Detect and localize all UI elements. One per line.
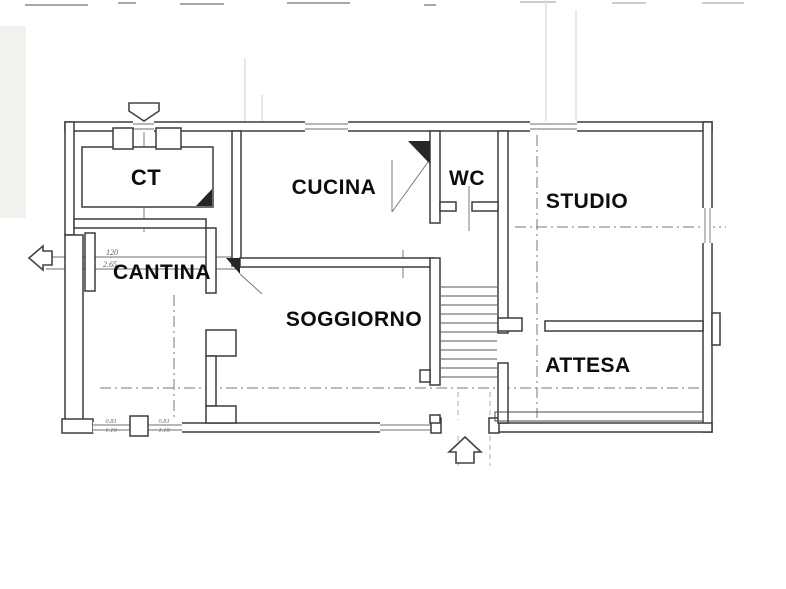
dim-side-door-height: 2.65 bbox=[103, 260, 117, 269]
dim-window-right-height: 1.10 bbox=[158, 427, 170, 434]
door-wedge-soggiorno bbox=[226, 258, 240, 274]
hall-left-wall-mid bbox=[430, 258, 440, 385]
wc-bottom-wall-left bbox=[440, 202, 456, 211]
dim-window-left-width: 0.81 bbox=[105, 418, 116, 425]
window-right bbox=[702, 208, 713, 243]
cucina-left-wall bbox=[232, 131, 241, 266]
window-mullion bbox=[130, 416, 148, 436]
room-label-cucina: CUCINA bbox=[292, 176, 377, 199]
divider-cantina-lower bbox=[206, 356, 216, 406]
cantina-door-jamb bbox=[85, 233, 95, 291]
dim-side-door-width: 120 bbox=[106, 248, 118, 257]
door-wedge-cucina bbox=[408, 141, 430, 164]
scanned-floor-plan-page: CT CUCINA WC STUDIO CANTINA SOGGIORNO AT… bbox=[0, 0, 786, 589]
divider-bottom-block bbox=[206, 406, 236, 423]
hall-right-stub bbox=[498, 318, 522, 331]
corner-block bbox=[62, 419, 93, 433]
cantina-top-wall bbox=[74, 219, 206, 228]
hall-right-wall-lower bbox=[498, 363, 508, 423]
hall-left-wall-lower bbox=[430, 415, 440, 423]
room-label-ct: CT bbox=[131, 165, 161, 190]
arrow-left-icon bbox=[29, 246, 52, 270]
window-top-1 bbox=[133, 121, 154, 132]
room-label-attesa: ATTESA bbox=[545, 354, 630, 377]
entrance-opening bbox=[431, 418, 499, 434]
room-label-studio: STUDIO bbox=[546, 190, 628, 213]
floor-plan-svg: CT CUCINA WC STUDIO CANTINA SOGGIORNO AT… bbox=[0, 0, 786, 589]
doors bbox=[196, 141, 430, 294]
staircase bbox=[441, 287, 497, 377]
arrow-bottom-icon bbox=[449, 437, 481, 463]
dim-window-left-height: 1.10 bbox=[105, 427, 117, 434]
wc-bottom-wall-right bbox=[472, 202, 498, 211]
room-label-soggiorno: SOGGIORNO bbox=[286, 308, 422, 331]
door-swing-soggiorno bbox=[240, 274, 262, 294]
flue-block-2 bbox=[156, 128, 181, 149]
attesa-bottom-inner bbox=[495, 412, 703, 421]
hall-left-bump bbox=[420, 370, 430, 382]
window-top-2 bbox=[305, 121, 348, 132]
pilaster bbox=[712, 313, 720, 345]
divider-pillar bbox=[206, 330, 236, 356]
window-top-3 bbox=[530, 121, 577, 132]
hall-right-wall-upper bbox=[498, 131, 508, 333]
arrow-top-icon bbox=[129, 103, 159, 121]
door-swing-cucina bbox=[392, 162, 428, 212]
room-label-wc: WC bbox=[449, 167, 485, 190]
studio-attesa-wall bbox=[545, 321, 703, 331]
flue-block-1 bbox=[113, 128, 133, 149]
window-bottom-3 bbox=[380, 422, 432, 433]
cucina-soggiorno-wall bbox=[240, 258, 434, 267]
dim-window-right-width: 0.81 bbox=[158, 418, 169, 425]
room-label-cantina: CANTINA bbox=[113, 261, 211, 284]
hall-left-wall-upper bbox=[430, 131, 440, 223]
